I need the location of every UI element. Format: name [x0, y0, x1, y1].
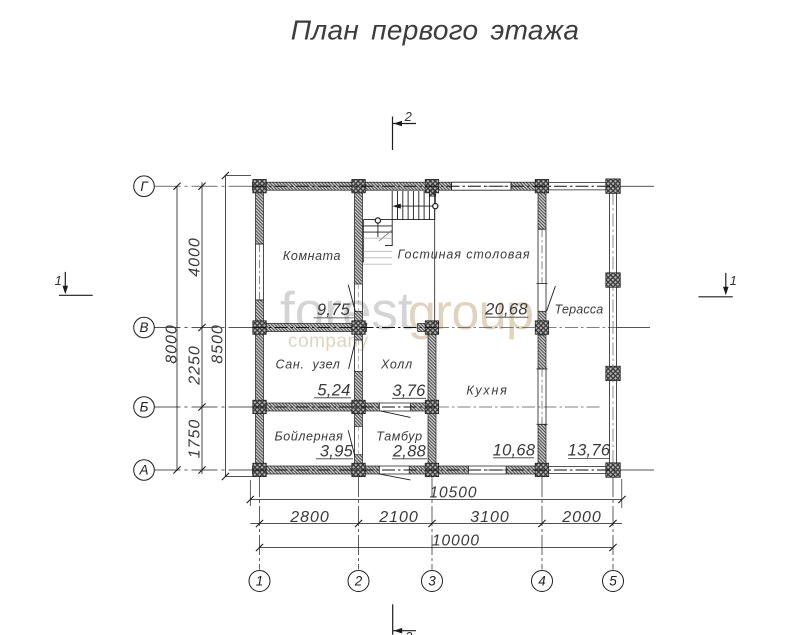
svg-text:2: 2 — [404, 109, 413, 124]
svg-text:4000: 4000 — [187, 237, 204, 277]
svg-text:Терасса: Терасса — [555, 303, 604, 317]
svg-text:Холл: Холл — [380, 358, 413, 372]
svg-text:Комната: Комната — [283, 249, 341, 263]
svg-text:8500: 8500 — [210, 324, 227, 364]
svg-text:8000: 8000 — [164, 324, 181, 364]
svg-text:В: В — [139, 320, 148, 335]
svg-text:Гостиная столовая: Гостиная столовая — [397, 248, 530, 262]
svg-text:2: 2 — [404, 629, 413, 635]
svg-text:1: 1 — [55, 273, 63, 288]
svg-text:3100: 3100 — [470, 509, 510, 526]
svg-text:1: 1 — [730, 273, 738, 288]
svg-text:5,24: 5,24 — [317, 382, 350, 400]
svg-text:4: 4 — [538, 574, 546, 589]
svg-text:2100: 2100 — [378, 509, 419, 526]
svg-text:10000: 10000 — [432, 533, 480, 550]
svg-text:2250: 2250 — [187, 345, 204, 386]
svg-text:3,95: 3,95 — [320, 443, 354, 461]
svg-text:Бойлерная: Бойлерная — [275, 430, 344, 444]
svg-text:9,75: 9,75 — [317, 301, 351, 319]
svg-text:Тамбур: Тамбур — [376, 430, 422, 444]
svg-text:5: 5 — [609, 574, 617, 589]
svg-text:10500: 10500 — [429, 485, 477, 502]
svg-text:2800: 2800 — [289, 509, 330, 526]
svg-text:Кухня: Кухня — [466, 384, 508, 398]
svg-text:10,68: 10,68 — [493, 442, 536, 460]
svg-text:3,76: 3,76 — [392, 382, 426, 400]
svg-text:1: 1 — [256, 574, 264, 589]
svg-text:13,76: 13,76 — [568, 442, 611, 460]
svg-text:Сан. узел: Сан. узел — [276, 358, 341, 372]
svg-text:2,88: 2,88 — [392, 443, 427, 461]
svg-text:План первого этажа: План первого этажа — [291, 15, 579, 46]
svg-text:Б: Б — [140, 400, 149, 415]
svg-text:2: 2 — [354, 574, 363, 589]
svg-text:20,68: 20,68 — [484, 301, 528, 319]
svg-text:1750: 1750 — [187, 419, 204, 459]
svg-text:3: 3 — [428, 574, 436, 589]
svg-text:2000: 2000 — [561, 509, 602, 526]
svg-text:А: А — [138, 463, 148, 478]
